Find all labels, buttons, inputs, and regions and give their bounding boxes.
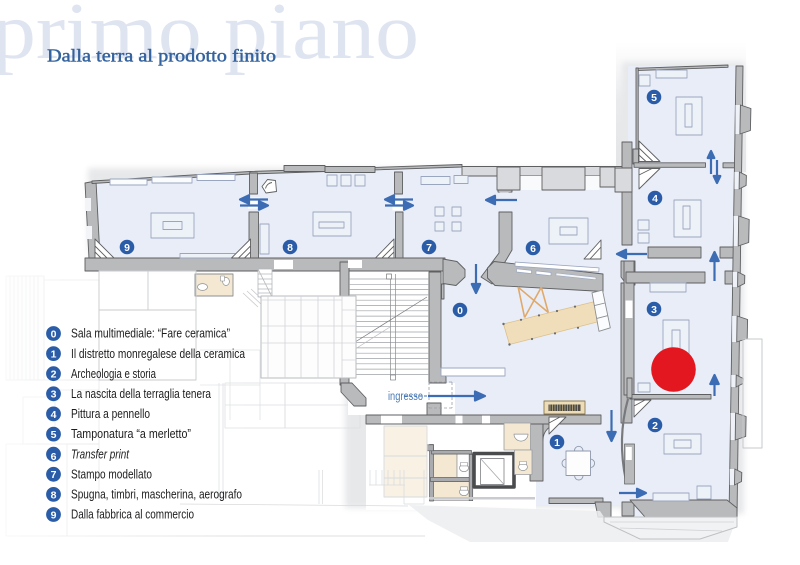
svg-text:8: 8: [51, 489, 57, 501]
svg-text:9: 9: [124, 242, 130, 254]
svg-text:ingresso: ingresso: [388, 391, 423, 403]
svg-text:4: 4: [51, 409, 57, 421]
svg-text:Dalla fabbrica al commercio: Dalla fabbrica al commercio: [71, 508, 194, 522]
svg-text:7: 7: [51, 469, 57, 481]
svg-text:Transfer print: Transfer print: [71, 447, 129, 461]
svg-text:1: 1: [51, 349, 57, 361]
svg-text:0: 0: [457, 305, 463, 317]
svg-text:0: 0: [51, 328, 57, 340]
svg-text:8: 8: [287, 242, 293, 254]
svg-text:5: 5: [51, 429, 57, 441]
svg-text:3: 3: [51, 389, 57, 401]
svg-text:Archeologia e storia: Archeologia e storia: [71, 367, 156, 381]
svg-text:3: 3: [651, 304, 657, 316]
svg-text:Sala multimediale: “Fare ceram: Sala multimediale: “Fare ceramica”: [71, 327, 230, 341]
svg-text:1: 1: [554, 437, 560, 449]
svg-text:9: 9: [51, 509, 57, 521]
svg-text:5: 5: [651, 92, 657, 104]
svg-text:Dalla terra al prodotto finito: Dalla terra al prodotto finito: [47, 46, 276, 66]
svg-text:Tamponatura “a merletto”: Tamponatura “a merletto”: [71, 427, 191, 441]
svg-text:7: 7: [426, 242, 432, 254]
svg-text:2: 2: [51, 369, 57, 381]
svg-text:Stampo modellato: Stampo modellato: [71, 468, 152, 482]
svg-text:Spugna, timbri, mascherina, ae: Spugna, timbri, mascherina, aerografo: [71, 488, 242, 502]
svg-text:2: 2: [652, 420, 658, 432]
svg-text:4: 4: [652, 193, 658, 205]
svg-text:Il distretto monregalese della: Il distretto monregalese della ceramica: [71, 347, 245, 361]
svg-text:Pittura a pennello: Pittura a pennello: [71, 407, 150, 421]
svg-text:6: 6: [530, 243, 536, 255]
svg-text:6: 6: [51, 451, 57, 463]
svg-text:La nascita della terraglia ten: La nascita della terraglia tenera: [71, 387, 211, 401]
